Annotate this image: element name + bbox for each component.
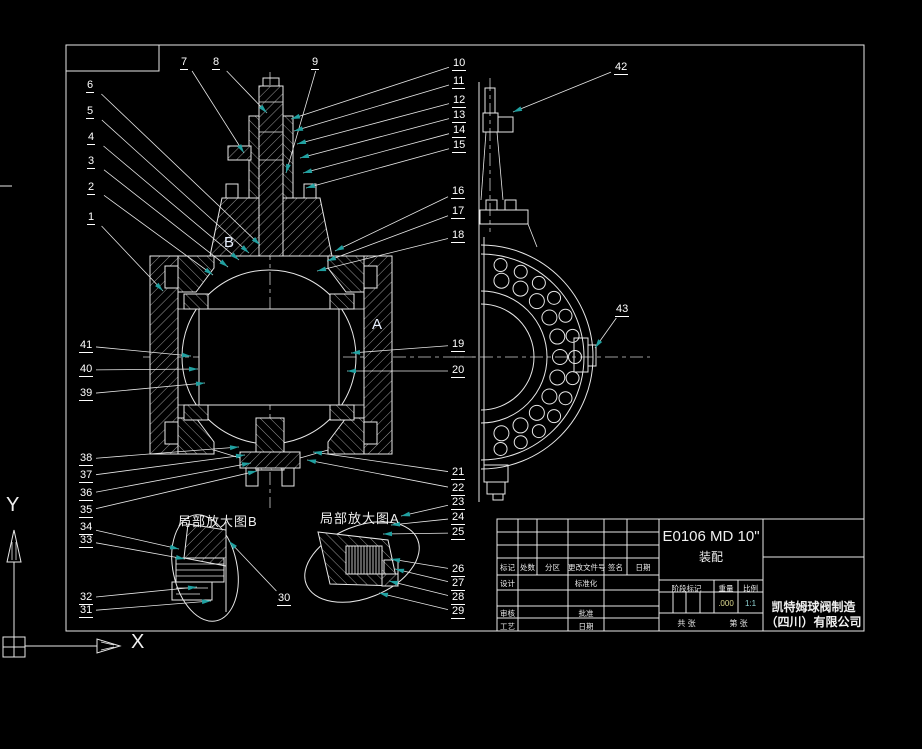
callout-28: 28 — [451, 592, 465, 605]
callout-34: 34 — [79, 522, 93, 535]
leader-line-14 — [303, 134, 449, 173]
callout-9: 9 — [311, 57, 319, 70]
weight-header: 重量 — [714, 583, 738, 594]
leader-arrowhead-35 — [248, 471, 257, 476]
ucs-icon — [3, 530, 120, 657]
leader-arrowhead-13 — [300, 153, 309, 158]
leader-arrowhead-20 — [347, 369, 356, 374]
callout-41: 41 — [79, 340, 93, 353]
bolt-hole — [559, 392, 572, 405]
bolt-hole — [566, 372, 579, 385]
leader-arrowhead-27 — [395, 569, 404, 574]
callout-6: 6 — [86, 80, 94, 93]
callout-7: 7 — [180, 57, 188, 70]
bolt-hole — [494, 273, 509, 288]
x-axis-label: X — [131, 631, 144, 654]
section-letter-b: B — [224, 234, 234, 251]
bolt-hole — [542, 389, 557, 404]
leader-arrowhead-14 — [303, 168, 312, 173]
sheet-number: 第 张 — [714, 618, 763, 629]
label-design: 设计 — [497, 578, 518, 589]
leader-line-7 — [192, 71, 244, 153]
callout-12: 12 — [452, 95, 466, 108]
leader-arrowhead-42 — [513, 106, 522, 112]
rev-header-docno: 更改文件号 — [568, 562, 604, 573]
leader-arrowhead-11 — [294, 126, 303, 131]
leader-arrowhead-25 — [383, 531, 392, 536]
detail-label-b: 局部放大图B — [178, 511, 258, 530]
callout-20: 20 — [451, 365, 465, 378]
callout-42: 42 — [614, 62, 628, 75]
callout-32: 32 — [79, 592, 93, 605]
section-view-ball-valve — [150, 78, 392, 486]
bolt-hole — [514, 436, 527, 449]
callout-35: 35 — [79, 505, 93, 518]
leader-arrowhead-40 — [189, 367, 198, 372]
bolt-hole — [494, 442, 507, 455]
callout-10: 10 — [452, 58, 466, 71]
callout-40: 40 — [79, 364, 93, 377]
callout-2: 2 — [87, 182, 95, 195]
leader-line-28 — [389, 581, 448, 596]
callout-1: 1 — [87, 212, 95, 225]
callout-14: 14 — [452, 125, 466, 138]
callout-21: 21 — [451, 467, 465, 480]
bolt-hole — [494, 426, 509, 441]
company-name-line2: （四川）有限公司 — [765, 613, 862, 630]
leader-line-42 — [513, 72, 611, 112]
bolt-hole — [548, 410, 561, 423]
callout-38: 38 — [79, 453, 93, 466]
bolt-hole — [559, 309, 572, 322]
rev-header-count: 处数 — [518, 562, 537, 573]
label-date: 日期 — [568, 621, 604, 632]
callout-39: 39 — [79, 388, 93, 401]
bolt-hole — [494, 259, 507, 272]
bolt-hole — [550, 329, 565, 344]
leader-line-32 — [96, 587, 197, 597]
rev-header-sign: 签名 — [604, 562, 627, 573]
leader-line-29 — [379, 593, 448, 610]
callout-15: 15 — [452, 140, 466, 153]
label-approve: 批准 — [568, 608, 604, 619]
callout-37: 37 — [79, 470, 93, 483]
label-standardization: 标准化 — [568, 578, 604, 589]
leader-line-34 — [96, 530, 179, 549]
rev-header-zone: 分区 — [537, 562, 568, 573]
rev-header-date: 日期 — [627, 562, 659, 573]
leader-line-15 — [306, 149, 449, 188]
callout-23: 23 — [451, 497, 465, 510]
rev-header-mark: 标记 — [497, 562, 518, 573]
leader-arrowhead-43 — [595, 339, 602, 348]
spring-seal — [346, 546, 382, 574]
leader-arrowhead-38 — [230, 445, 239, 450]
bolt-hole — [529, 294, 544, 309]
detail-label-a: 局部放大图A — [320, 508, 400, 527]
callout-17: 17 — [451, 206, 465, 219]
callout-4: 4 — [87, 132, 95, 145]
leader-arrowhead-22 — [307, 459, 316, 464]
callout-33: 33 — [79, 535, 93, 548]
end-view-flange — [479, 82, 596, 502]
leader-line-17 — [327, 216, 448, 261]
section-letter-a: A — [372, 316, 382, 333]
callout-5: 5 — [86, 106, 94, 119]
scale-value: 1:1 — [738, 599, 763, 608]
callout-25: 25 — [451, 527, 465, 540]
y-axis-label: Y — [6, 494, 19, 517]
bolt-hole — [529, 405, 544, 420]
callout-29: 29 — [451, 606, 465, 619]
centerlines — [143, 72, 650, 508]
callout-19: 19 — [451, 339, 465, 352]
seat — [184, 294, 208, 309]
callout-13: 13 — [452, 110, 466, 123]
bolt-hole — [548, 291, 561, 304]
leader-arrowhead-21 — [313, 451, 322, 456]
callout-8: 8 — [212, 57, 220, 70]
leader-line-13 — [300, 119, 449, 158]
weight-value: .000 — [714, 599, 738, 608]
bolt-hole — [550, 370, 565, 385]
leader-arrowhead-18 — [317, 267, 326, 272]
leader-line-37 — [96, 455, 245, 475]
callout-24: 24 — [451, 512, 465, 525]
callout-16: 16 — [451, 186, 465, 199]
leader-arrowhead-12 — [297, 139, 306, 144]
leader-line-22 — [307, 460, 448, 487]
stem — [259, 86, 283, 256]
leader-arrowhead-29 — [379, 593, 388, 598]
stage-header: 阶段标记 — [659, 583, 714, 594]
bolt-hole — [566, 329, 579, 342]
leader-arrowhead-23 — [401, 512, 410, 517]
callout-26: 26 — [451, 564, 465, 577]
bolt-hole — [532, 425, 545, 438]
leader-arrowhead-3 — [219, 260, 228, 267]
callout-18: 18 — [451, 230, 465, 243]
leader-line-4 — [104, 146, 239, 260]
bolt-hole — [542, 310, 557, 325]
callout-30: 30 — [277, 593, 291, 606]
callout-27: 27 — [451, 578, 465, 591]
callout-36: 36 — [79, 488, 93, 501]
leader-line-31 — [96, 601, 211, 610]
label-check: 审核 — [497, 608, 518, 619]
cad-canvas[interactable]: B A 局部放大图B 局部放大图A Y X E0106 MD 10" 装配 标记… — [0, 0, 922, 749]
leader-line-6 — [101, 94, 260, 245]
label-process: 工艺 — [497, 621, 518, 632]
drawing-number: E0106 MD 10" — [659, 528, 763, 545]
callout-22: 22 — [451, 483, 465, 496]
bolt-hole — [532, 276, 545, 289]
callout-3: 3 — [87, 156, 95, 169]
leader-line-21 — [313, 452, 448, 472]
sheet-total: 共 张 — [659, 618, 714, 629]
leader-arrowhead-34 — [170, 545, 179, 550]
bolt-hole — [513, 281, 528, 296]
leader-arrowhead-16 — [335, 245, 344, 251]
drawing-title: 装配 — [659, 548, 763, 565]
leader-line-25 — [383, 533, 448, 534]
callout-11: 11 — [452, 76, 465, 89]
bolt-hole — [513, 418, 528, 433]
callout-43: 43 — [615, 304, 629, 317]
leader-line-3 — [104, 170, 228, 267]
leader-line-30 — [229, 541, 276, 591]
scale-header: 比例 — [738, 583, 763, 594]
bolt-hole — [514, 265, 527, 278]
callout-31: 31 — [79, 605, 93, 618]
